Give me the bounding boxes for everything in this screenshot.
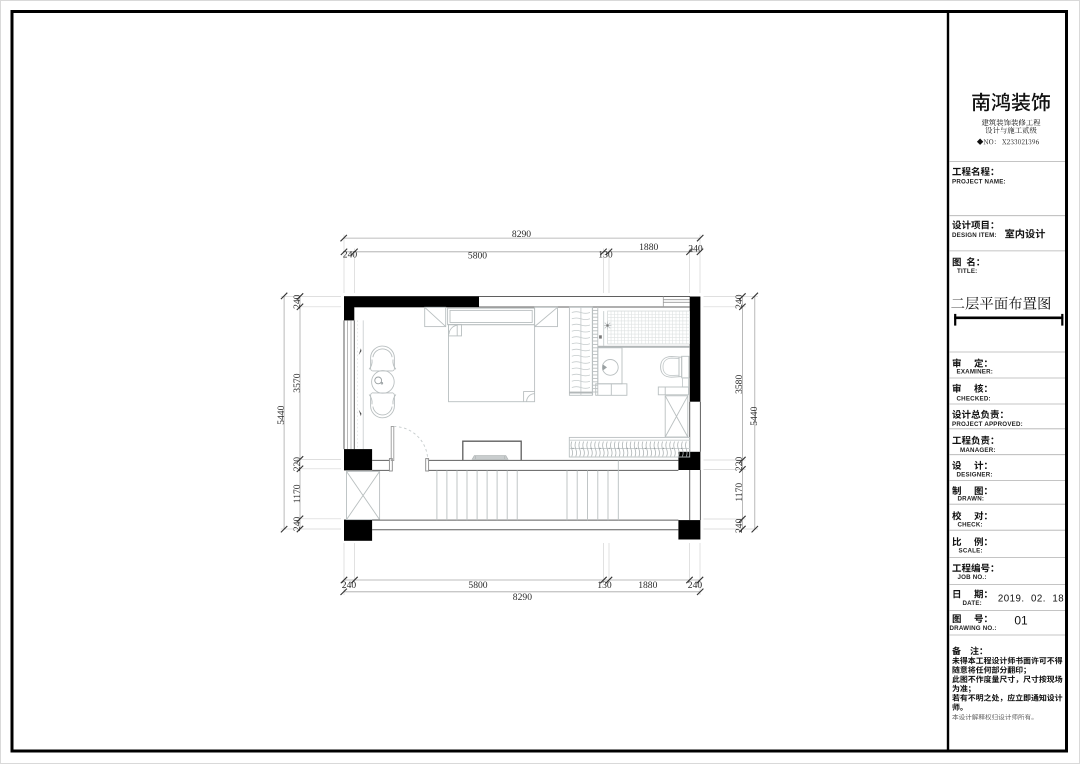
svg-text:5440: 5440 xyxy=(276,405,287,424)
svg-text:240: 240 xyxy=(688,580,703,591)
svg-text:TITLE:: TITLE: xyxy=(957,268,977,275)
svg-text:DRAWING NO.:: DRAWING NO.: xyxy=(950,625,997,632)
svg-text:3580: 3580 xyxy=(734,375,745,394)
svg-text:3570: 3570 xyxy=(292,373,303,392)
svg-text:130: 130 xyxy=(597,580,612,591)
svg-text:DESIGN ITEM:: DESIGN ITEM: xyxy=(952,232,997,239)
svg-text:240: 240 xyxy=(688,243,703,254)
svg-text:240: 240 xyxy=(292,517,303,532)
svg-text:8290: 8290 xyxy=(512,229,531,240)
svg-text:1170: 1170 xyxy=(734,483,745,502)
svg-text:DRAWN:: DRAWN: xyxy=(958,496,985,503)
svg-text:240: 240 xyxy=(734,294,745,309)
svg-text:8290: 8290 xyxy=(513,592,532,603)
svg-text:2019. 02. 18: 2019. 02. 18 xyxy=(998,593,1064,604)
svg-text:CHECKED:: CHECKED: xyxy=(957,396,991,403)
svg-text:1880: 1880 xyxy=(638,580,657,591)
svg-text:MANAGER:: MANAGER: xyxy=(960,447,996,454)
svg-text:DESIGNER:: DESIGNER: xyxy=(957,472,993,479)
svg-text:01: 01 xyxy=(1014,614,1028,628)
svg-text:130: 130 xyxy=(598,249,613,260)
svg-text:PROJECT NAME:: PROJECT NAME: xyxy=(952,178,1006,185)
svg-text:240: 240 xyxy=(734,518,745,533)
svg-text:5800: 5800 xyxy=(468,580,487,591)
svg-text:240: 240 xyxy=(342,580,357,591)
svg-text:240: 240 xyxy=(292,294,303,309)
svg-text:220: 220 xyxy=(292,457,303,472)
svg-text:PROJECT APPROVED:: PROJECT APPROVED: xyxy=(952,421,1023,428)
svg-text:DATE:: DATE: xyxy=(963,600,982,607)
svg-text:1880: 1880 xyxy=(639,242,658,253)
svg-text:5440: 5440 xyxy=(749,406,760,425)
svg-text:220: 220 xyxy=(734,457,745,472)
svg-text:240: 240 xyxy=(343,249,358,260)
svg-text:1170: 1170 xyxy=(292,484,303,503)
svg-text:CHECK:: CHECK: xyxy=(958,522,983,529)
svg-text:EXAMINER:: EXAMINER: xyxy=(957,369,994,376)
svg-text:JOB NO.:: JOB NO.: xyxy=(958,574,987,581)
svg-text:SCALE:: SCALE: xyxy=(959,548,983,555)
svg-text:5800: 5800 xyxy=(468,251,487,262)
